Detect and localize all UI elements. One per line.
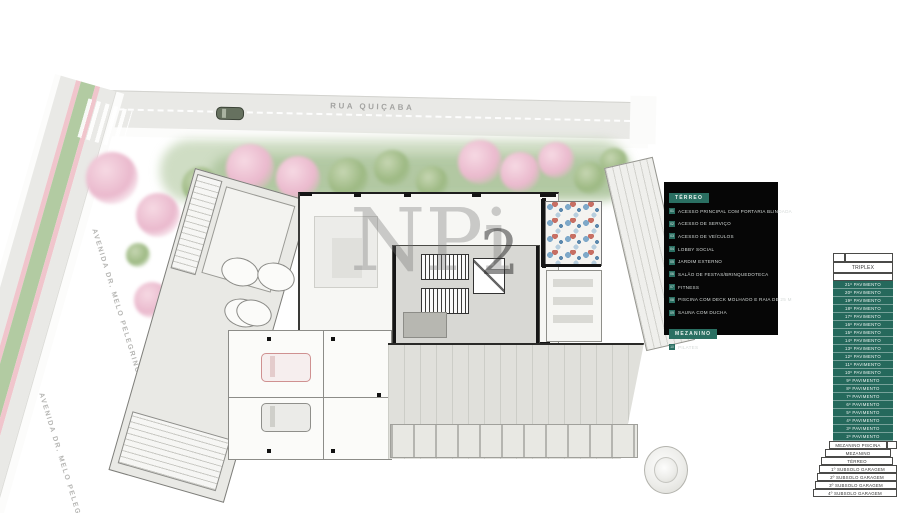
avenue-label-lower: AVENIDA DR. MELO PELEGRINO	[37, 392, 88, 513]
stack-floor-row: 8º PAVIMENTO	[833, 385, 893, 393]
stack-floor-row: 20º PAVIMENTO	[833, 289, 893, 297]
legend-item: 02ACESSO DE SERVIÇO	[669, 221, 773, 227]
deck-colonnade	[390, 424, 638, 458]
column-dot	[331, 449, 335, 453]
stack-step-cell	[887, 441, 897, 449]
legend-item: 10PILATES	[669, 344, 773, 350]
sketch-tree	[644, 446, 688, 494]
garage-rooms	[228, 330, 392, 460]
stack-floor-row: 13º PAVIMENTO	[833, 345, 893, 353]
stack-floors: 21º PAVIMENTO20º PAVIMENTO19º PAVIMENTO1…	[833, 281, 893, 441]
stack-floor-row: 5º PAVIMENTO	[833, 409, 893, 417]
stack-floor-row: 18º PAVIMENTO	[833, 305, 893, 313]
legend-item-label: PILATES	[678, 345, 698, 350]
wall-segment	[540, 192, 556, 197]
legend-item-number: 03	[669, 233, 675, 239]
legend-item-number: 09	[669, 310, 675, 316]
legend-item: 05JARDIM EXTERNO	[669, 259, 773, 265]
legend-panel: TÉRREO 01ACESSO PRINCIPAL COM PORTARIA B…	[664, 182, 778, 335]
legend-item-number: 04	[669, 246, 675, 252]
stack-mezanino-piscina-row: MEZANINO PISCINA	[829, 441, 887, 449]
stack-mezanino-row: MEZANINO	[825, 449, 891, 457]
wall-segment	[541, 199, 544, 267]
stack-floor-row: 9º PAVIMENTO	[833, 377, 893, 385]
interior-wall	[323, 331, 324, 459]
legend-item-number: 06	[669, 271, 675, 277]
legend-terreo-title: TÉRREO	[669, 193, 709, 203]
flowering-tree	[538, 142, 574, 178]
fitness-room	[546, 270, 602, 342]
legend-mezanino-title: MEZANINO	[669, 329, 717, 339]
trellis-panel-lower	[118, 411, 231, 491]
legend-item-number: 01	[669, 208, 675, 214]
stack-roof-cell-right	[845, 253, 893, 262]
legend-item: 06SALÃO DE FESTAS/BRINQUEDOTECA	[669, 271, 773, 277]
sidewalk-corner	[629, 96, 656, 145]
car-windshield	[270, 406, 275, 427]
core-furniture	[403, 312, 447, 338]
wall-segment	[300, 192, 312, 196]
legend-item-label: LOBBY SOCIAL	[678, 247, 714, 252]
legend-item-label: ACESSO DE VEÍCULOS	[678, 234, 734, 239]
legend-item-label: JARDIM EXTERNO	[678, 259, 722, 264]
legend-item-label: SALÃO DE FESTAS/BRINQUEDOTECA	[678, 272, 768, 277]
staircase-lower	[421, 288, 469, 314]
legend-item-number: 07	[669, 284, 675, 290]
stack-floor-row: 10º PAVIMENTO	[833, 369, 893, 377]
legend-mezanino-items: 10PILATES	[669, 344, 773, 350]
stack-floor-row: 14º PAVIMENTO	[833, 337, 893, 345]
stack-terreo-row: TÉRREO	[821, 457, 893, 465]
parked-car-gray	[261, 403, 311, 432]
flowering-tree	[500, 152, 540, 192]
street-top-label: RUA QUIÇABA	[330, 101, 414, 112]
stack-floor-row: 12º PAVIMENTO	[833, 353, 893, 361]
stack-subsolo-row: 2º SUBSOLO GARAGEM	[817, 473, 897, 481]
stack-triplex-row: TRIPLEX	[833, 262, 893, 273]
stack-floor-row: 15º PAVIMENTO	[833, 329, 893, 337]
stack-roof-cell-left	[833, 253, 845, 262]
car-windshield	[222, 109, 226, 118]
site-plan-canvas: RUA QUIÇABA AVENIDA DR. MELO PELEGRINO A…	[0, 0, 900, 513]
legend-item-label: PISCINA COM DECK MOLHADO E RAIA DE 25 M	[678, 297, 792, 302]
stack-subsolo-row: 4º SUBSOLO GARAGEM	[813, 489, 897, 497]
legend-item: 03ACESSO DE VEÍCULOS	[669, 233, 773, 239]
stack-floor-row: 21º PAVIMENTO	[833, 281, 893, 289]
stack-floor-row: 11º PAVIMENTO	[833, 361, 893, 369]
pool-mosaic-area	[545, 201, 602, 266]
legend-item: 01ACESSO PRINCIPAL COM PORTARIA BLINDADA	[669, 208, 773, 214]
flowering-tree	[136, 193, 180, 237]
interior-wall	[229, 397, 391, 398]
legend-item: 07FITNESS	[669, 284, 773, 290]
legend-item-label: ACESSO DE SERVIÇO	[678, 221, 731, 226]
stack-subsolo-row: 3º SUBSOLO GARAGEM	[815, 481, 897, 489]
legend-item-label: ACESSO PRINCIPAL COM PORTARIA BLINDADA	[678, 209, 792, 214]
stack-floor-row: 16º PAVIMENTO	[833, 321, 893, 329]
fitness-equipment	[553, 297, 593, 305]
flowering-tree	[458, 140, 502, 184]
stack-floor-row: 2º PAVIMENTO	[833, 433, 893, 441]
stack-blank-row	[833, 273, 893, 281]
green-tree	[126, 243, 150, 267]
stack-floor-row: 7º PAVIMENTO	[833, 393, 893, 401]
legend-item-number: 10	[669, 344, 675, 350]
legend-terreo-items: 01ACESSO PRINCIPAL COM PORTARIA BLINDADA…	[669, 208, 773, 316]
parked-car-pink	[261, 353, 311, 382]
wall-segment	[545, 264, 601, 267]
flowering-tree	[86, 152, 138, 204]
stack-floor-row: 17º PAVIMENTO	[833, 313, 893, 321]
legend-item-label: SAUNA COM DUCHA	[678, 310, 727, 315]
fitness-equipment	[553, 315, 593, 323]
legend-item: 04LOBBY SOCIAL	[669, 246, 773, 252]
fitness-equipment	[553, 279, 593, 287]
legend-item: 08PISCINA COM DECK MOLHADO E RAIA DE 25 …	[669, 297, 773, 303]
column-dot	[267, 449, 271, 453]
column-dot	[267, 337, 271, 341]
sketch-tree-inner	[654, 457, 678, 483]
car-windshield	[270, 356, 275, 377]
column-dot	[331, 337, 335, 341]
watermark-digit: 2	[480, 222, 519, 284]
column-dot	[377, 393, 381, 397]
wall-segment	[536, 246, 539, 344]
legend-item-number: 02	[669, 221, 675, 227]
car-on-street	[216, 107, 244, 121]
stack-floor-row: 3º PAVIMENTO	[833, 425, 893, 433]
legend-item: 09SAUNA COM DUCHA	[669, 310, 773, 316]
stack-floor-row: 4º PAVIMENTO	[833, 417, 893, 425]
stack-floor-row: 6º PAVIMENTO	[833, 401, 893, 409]
legend-item-number: 08	[669, 297, 675, 303]
legend-item-label: FITNESS	[678, 285, 699, 290]
stack-subsolo-row: 1º SUBSOLO GARAGEM	[819, 465, 897, 473]
green-tree	[374, 150, 410, 186]
legend-item-number: 05	[669, 259, 675, 265]
stack-floor-row: 19º PAVIMENTO	[833, 297, 893, 305]
